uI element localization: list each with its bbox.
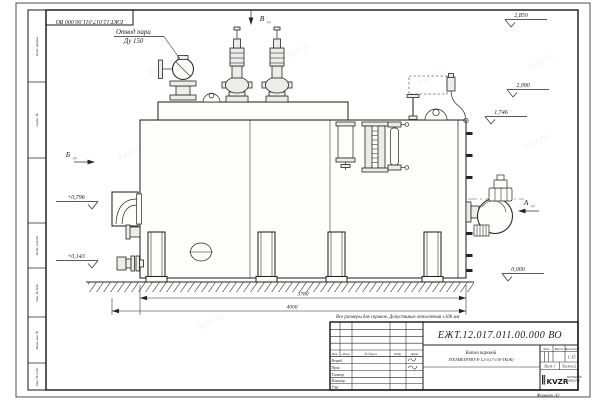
elevation-mark: 0,000 (502, 267, 544, 281)
boiler-shell (140, 102, 473, 278)
left-stamp-column: Перв. примен. Справ. № Подп. и дата Инв.… (28, 10, 46, 390)
dimension-value: 3780 (297, 292, 309, 298)
dimension: 3780 (140, 292, 466, 301)
watermark: kvzr.ru (527, 51, 555, 72)
elevation-mark: 1,746 (485, 109, 527, 124)
stamp-label: Подп. и дата (35, 236, 39, 257)
vent-valve (407, 95, 419, 121)
tb-col-header: № докум. (364, 352, 378, 356)
elevation-value: +0,143 (67, 253, 85, 260)
signature-mark (408, 358, 416, 361)
reference-note: Все размеры для справок. Допустимые откл… (336, 315, 459, 320)
elevation-mark: +0,143 (56, 253, 98, 268)
dimension-value: 4000 (287, 304, 298, 311)
tb-product-model: STEAMEXPERT-Е-1,2-0,17-130-ТК(Ж) (449, 357, 515, 363)
safety-valve-2 (262, 27, 292, 102)
stamp-label: Перв. примен. (35, 36, 39, 57)
watermark: kvzr.ru (282, 41, 310, 62)
stamp-label: Инв. № дубл. (35, 283, 39, 303)
tb-doc-number: ЕЖТ.12.017.011.00.000 ВО (437, 330, 562, 341)
view-marker-right: А (2) (518, 198, 539, 213)
format-label: Формат А3 (537, 393, 561, 398)
elevation-value: 0,000 (511, 267, 525, 273)
top-doc-number: ЕЖТ.12.017.011.00.000 ВО (55, 18, 124, 24)
elevation-value: +0,796 (67, 195, 85, 201)
safety-valve-1 (222, 27, 252, 102)
kvzr-logo: KVZR КОТЕЛЬНЫЙ ЗАВОД РЭП (542, 375, 582, 386)
elevation-value: 2,850 (514, 13, 528, 19)
elevation-mark: 2,090 (507, 83, 549, 97)
stamp-label: Взам. инв. № (35, 330, 39, 349)
elevation-value: 2,090 (516, 83, 530, 89)
view-marker-top-label: В (260, 14, 265, 23)
ground (86, 282, 474, 292)
support-leg (326, 232, 347, 282)
view-marker-top: В (2) (249, 11, 271, 25)
tb-col-header: Изм. (331, 352, 339, 356)
view-marker-right-ref: (2) (531, 204, 535, 208)
level-probe (447, 74, 468, 123)
title-block: Изм. Лист № докум. Подп. Дата Разраб. Пр… (330, 322, 582, 390)
tb-col-header: Лист (341, 352, 350, 356)
support-leg (146, 232, 167, 282)
watermark: kvzr.ru (197, 311, 225, 332)
lifting-lug-right (425, 109, 447, 120)
tb-row-label: Н.контр. (331, 379, 346, 383)
dimension: 4000 (112, 304, 466, 314)
tb-row-label: Разраб. (331, 359, 344, 363)
feed-pump (117, 256, 144, 271)
tb-prop-header: Масса (554, 347, 564, 351)
tb-scale-value: 1:15 (567, 355, 576, 360)
top-doc-number-box: ЕЖТ.12.017.011.00.000 ВО (46, 10, 133, 25)
tb-col-header: Дата (410, 352, 419, 356)
water-level-gauge (336, 122, 409, 172)
view-marker-right-label: А (523, 198, 529, 207)
elevation-value: 1,746 (494, 109, 508, 116)
view-marker-left-label: Б (65, 150, 71, 159)
tb-prop-header: Масштаб (563, 347, 578, 351)
tb-prop-header: Лит. (542, 347, 550, 351)
tb-product-name: Котел паровой (465, 350, 497, 356)
elevation-mark: +0,796 (56, 195, 98, 209)
view-marker-left: Б (2) (65, 150, 95, 164)
steam-outlet-callout: Отвод пара Ду 150 (114, 29, 180, 59)
lifting-lug-left (203, 93, 220, 102)
watermark: kvzr.ru (417, 66, 445, 87)
stamp-label: Справ. № (35, 112, 39, 127)
signature-mark (408, 366, 417, 369)
view-marker-left-ref: (2) (73, 156, 77, 160)
support-leg (422, 232, 443, 282)
blueprint-page: kvzr.ru kvzr.ru kvzr.ru kvzr.ru kvzr.ru … (0, 0, 600, 400)
left-nozzle (126, 225, 140, 239)
tb-row-label: Т.контр. (332, 373, 345, 377)
tb-col-header: Подп. (393, 352, 402, 356)
tb-row-label: Утв. (332, 385, 340, 389)
steam-outlet-label-line2: Ду 150 (123, 38, 144, 45)
kvzr-logo-sub2: ЗАВОД РЭП (567, 379, 580, 382)
view-marker-top-ref: (2) (267, 20, 271, 24)
tb-row-label: Пров. (331, 366, 341, 370)
boiler-drawing-canvas: kvzr.ru kvzr.ru kvzr.ru kvzr.ru kvzr.ru … (0, 0, 600, 400)
steam-outlet-label-line1: Отвод пара (116, 29, 151, 36)
support-leg (256, 232, 277, 282)
watermark: kvzr.ru (522, 131, 550, 152)
tb-sheet: Лист 1 (543, 364, 555, 368)
tb-sheets: Листов 2 (561, 364, 577, 368)
stamp-label: Инв. № подл. (35, 367, 39, 387)
kvzr-logo-text: KVZR (547, 377, 569, 386)
elevation-mark: 2,850 (505, 13, 547, 27)
burner (466, 175, 513, 236)
flue-gas-box (112, 192, 142, 226)
